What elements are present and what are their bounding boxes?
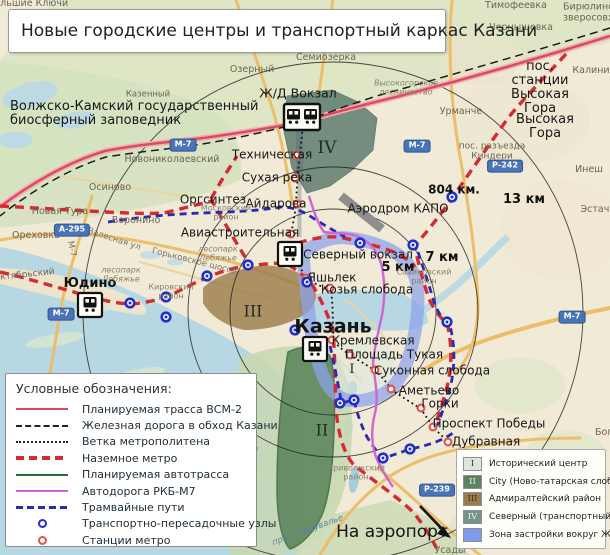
legend-sample-dotted-icon <box>16 441 68 443</box>
legend-item-label: Автодорога РКБ-М7 <box>82 485 196 498</box>
zone-legend-label: Северный (транспортный) центр <box>489 512 610 522</box>
legend-item-label: Транспортно-пересадочные узлы <box>82 517 276 530</box>
zone-swatch: II <box>463 475 482 489</box>
zone-legend-item: IIIАдмиралтейский район <box>463 491 599 509</box>
zone-legend-item: IИсторический центр <box>463 455 599 473</box>
kazan-transport-map: Волжско-Камский государственный биосферн… <box>0 0 610 555</box>
legend-item: Наземное метро <box>14 450 248 466</box>
station-icon-severny-vokzal <box>278 242 302 266</box>
legend-item: Трамвайные пути <box>14 499 248 515</box>
zone-legend-item: Зона застройки вокруг ЖД кольца <box>463 526 599 544</box>
map-title-box: Новые городские центры и транспортный ка… <box>8 9 446 53</box>
legend-item: Железная дорога в обход Казани <box>14 417 248 433</box>
legend-item-label: Станции метро <box>82 534 171 547</box>
legend-item-label: Планируемая трасса ВСМ-2 <box>82 403 242 416</box>
legend-item-label: Ветка метрополитена <box>82 435 210 448</box>
legend-title: Условные обозначения: <box>16 381 248 396</box>
legend-sample-dot-icon <box>38 519 47 528</box>
map-title: Новые городские центры и транспортный ка… <box>21 21 537 41</box>
legend-item-label: Наземное метро <box>82 452 177 465</box>
legend-sample-dot-icon <box>38 536 47 545</box>
legend-sample-meddash-icon <box>16 506 68 509</box>
legend-item: Автодорога РКБ-М7 <box>14 483 248 499</box>
zone-legend-label: Адмиралтейский район <box>489 494 601 504</box>
legend-sample-solid-icon <box>16 490 68 492</box>
zone-swatch: III <box>463 492 482 506</box>
station-icon-zhd-vokzal <box>284 104 320 130</box>
legend-lines: Условные обозначения: Планируемая трасса… <box>5 373 257 547</box>
legend-sample-solid-icon <box>16 408 68 410</box>
legend-sample-thickdash-icon <box>16 456 68 460</box>
zone-legend-item: IVСеверный (транспортный) центр <box>463 508 599 526</box>
legend-item-label: Трамвайные пути <box>82 501 185 514</box>
zone-legend-label: Исторический центр <box>489 459 587 469</box>
legend-item: Ветка метрополитена <box>14 434 248 450</box>
zone-swatch <box>463 528 482 542</box>
station-icon-yudino <box>78 293 102 317</box>
zone-swatch: IV <box>463 510 482 524</box>
legend-item: Планируемая автотрасса <box>14 467 248 483</box>
zone-swatch: I <box>463 457 482 471</box>
zone-legend-label: City (Ново-татарская слобода) <box>489 477 610 487</box>
legend-item-label: Планируемая автотрасса <box>82 468 229 481</box>
legend-zones: IИсторический центрIICity (Ново-татарска… <box>456 449 606 549</box>
legend-sample-solid-icon <box>16 474 68 476</box>
legend-item: Станции метро <box>14 532 248 548</box>
zone-legend-label: Зона застройки вокруг ЖД кольца <box>489 530 610 540</box>
legend-item: Планируемая трасса ВСМ-2 <box>14 401 248 417</box>
legend-item-label: Железная дорога в обход Казани <box>82 419 278 432</box>
station-icon-kazan <box>303 337 327 361</box>
legend-sample-dashed-icon <box>16 425 68 427</box>
legend-item: Транспортно-пересадочные узлы <box>14 516 248 532</box>
zone-legend-item: IICity (Ново-татарская слобода) <box>463 473 599 491</box>
